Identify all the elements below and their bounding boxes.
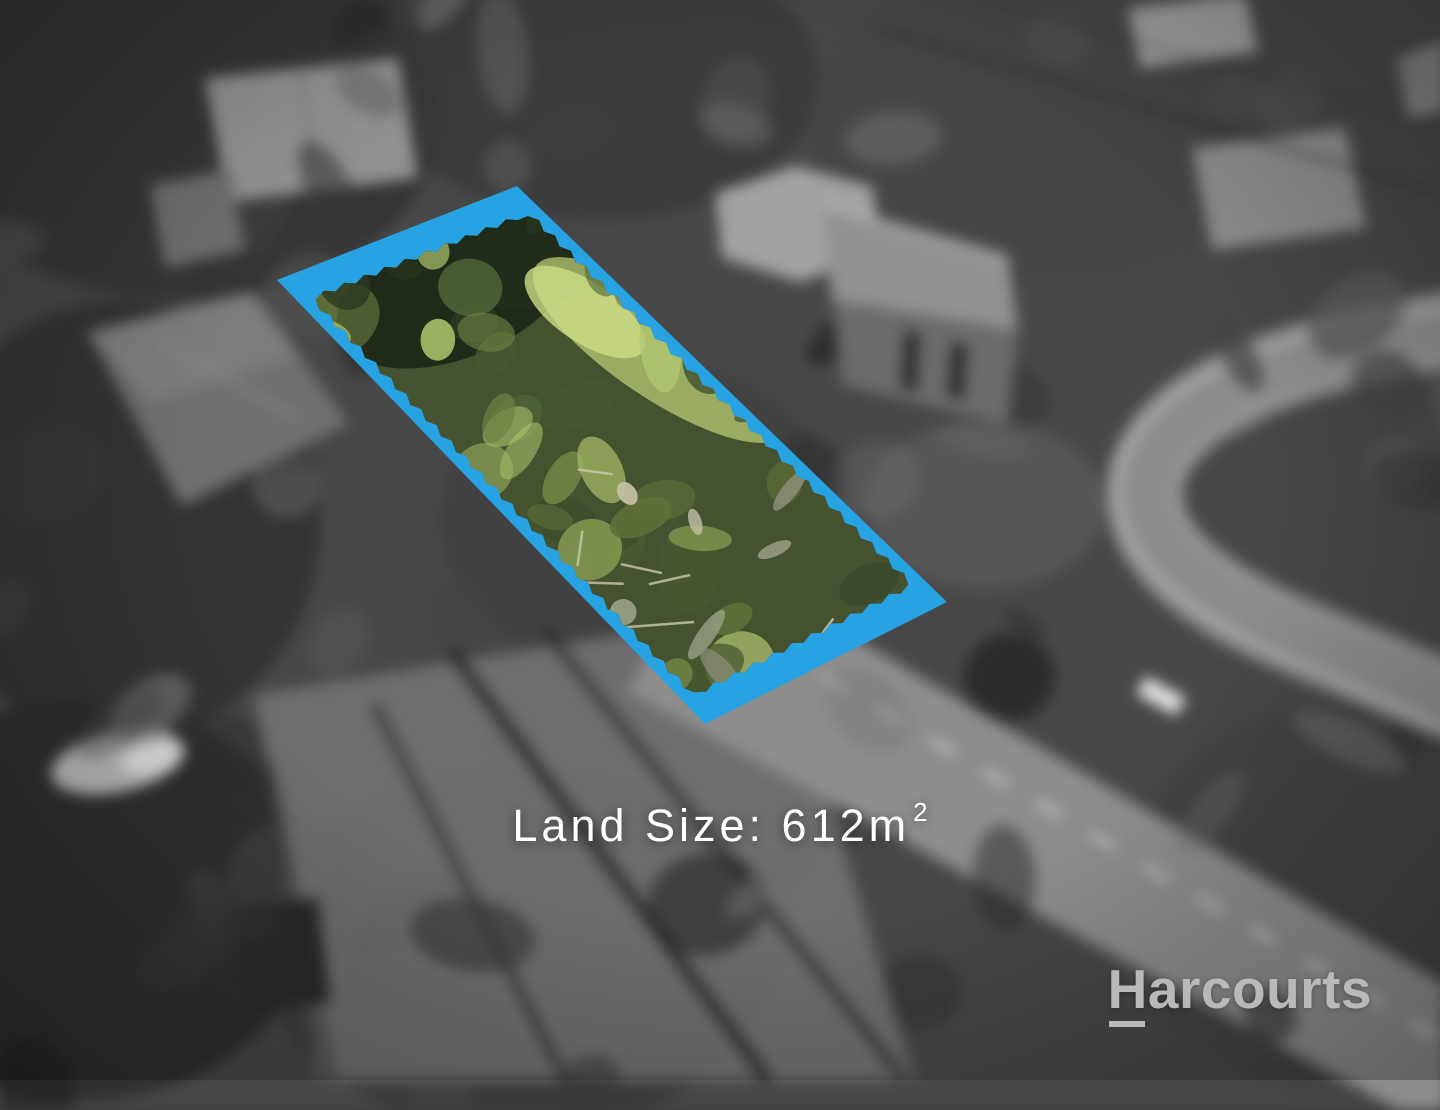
harcourts-logo: Harcourts <box>1108 962 1372 1017</box>
logo-underlined-h: H <box>1108 962 1148 1017</box>
land-size-text: Land Size: 612m <box>512 800 910 851</box>
logo-rest: arcourts <box>1148 958 1372 1020</box>
land-size-superscript: 2 <box>913 797 927 827</box>
aerial-photo-background <box>0 0 1440 1080</box>
land-parcel-overlay <box>0 0 1440 1080</box>
land-size-label: Land Size: 612m2 <box>0 800 1440 852</box>
